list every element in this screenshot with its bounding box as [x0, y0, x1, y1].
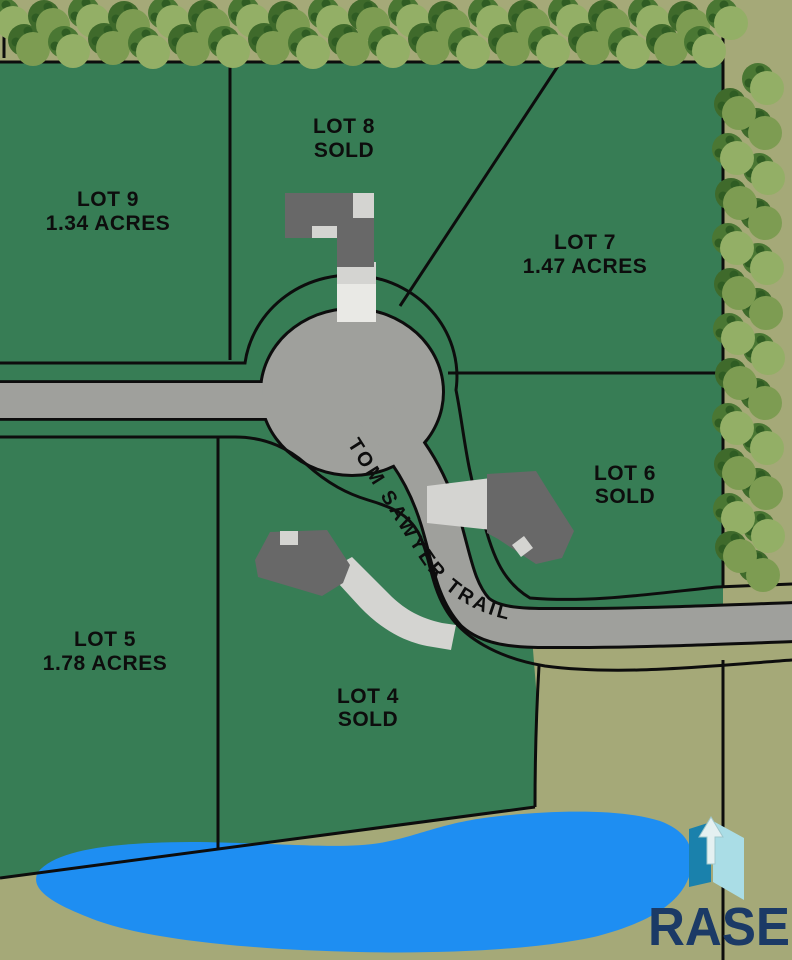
lot-8-patio [353, 193, 374, 218]
lot-6-driveway [427, 478, 492, 530]
plat-map-canvas: LOT 9 1.34 ACRES LOT 8 SOLD LOT 7 1.47 A… [0, 0, 792, 960]
lot-4-house-notch [280, 531, 298, 545]
lot-6-name: LOT 6 [594, 462, 656, 485]
lot-5-detail: 1.78 ACRES [43, 652, 167, 675]
lot-9-detail: 1.34 ACRES [46, 212, 170, 235]
lot-8-label-group: LOT 8 SOLD [313, 115, 375, 162]
lot-6-label-group: LOT 6 SOLD [594, 462, 656, 508]
lot-8-driveway-apron [337, 284, 376, 322]
lot-7-detail: 1.47 ACRES [523, 255, 647, 278]
logo-text: RASE [648, 897, 790, 957]
lot-4-label-group: LOT 4 SOLD [337, 685, 399, 731]
lot-8-detail: SOLD [314, 139, 374, 162]
lot-8-house-notch [312, 226, 337, 238]
lot-5-name: LOT 5 [74, 628, 136, 651]
lot-6-detail: SOLD [595, 485, 655, 508]
lot-7-name: LOT 7 [554, 231, 616, 254]
lot-4-detail: SOLD [338, 708, 398, 731]
road-west [0, 383, 302, 418]
lot-4-name: LOT 4 [337, 685, 399, 708]
plat-map: LOT 9 1.34 ACRES LOT 8 SOLD LOT 7 1.47 A… [0, 0, 792, 960]
lot-8-name: LOT 8 [313, 115, 375, 138]
lot-9-name: LOT 9 [77, 188, 139, 211]
